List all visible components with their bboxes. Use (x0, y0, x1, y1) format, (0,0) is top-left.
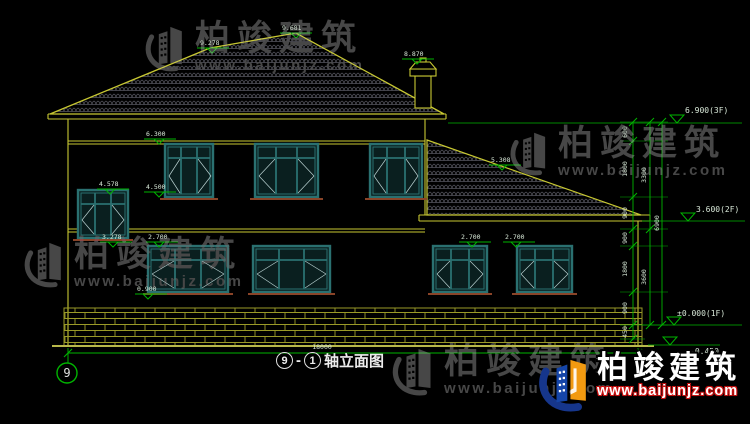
window-stair (78, 190, 128, 238)
svg-text:450: 450 (621, 326, 629, 338)
site-logo-url: www.baijunjz.com (597, 384, 741, 399)
window-1f-mid (253, 246, 330, 292)
svg-text:3300: 3300 (640, 167, 648, 183)
window-2f-right (370, 144, 422, 197)
svg-text:9.681: 9.681 (282, 24, 302, 32)
svg-text:900: 900 (621, 207, 629, 219)
svg-text:600: 600 (621, 126, 629, 138)
svg-text:2.700: 2.700 (461, 233, 481, 241)
brick-base (52, 308, 654, 346)
svg-text:6900: 6900 (653, 215, 661, 231)
site-logo-brand: 柏竣建筑 (597, 352, 741, 383)
title-separator: - (296, 352, 301, 369)
drawing-title: 9 - 1 轴立面图 (276, 350, 384, 371)
svg-text:1800: 1800 (621, 161, 629, 177)
annex-roof (419, 140, 650, 221)
svg-text:5.308: 5.308 (491, 156, 511, 164)
svg-text:9.278: 9.278 (200, 39, 220, 47)
svg-text:±0.000(1F): ±0.000(1F) (677, 309, 725, 318)
title-axis-end-bubble: 1 (304, 352, 321, 369)
main-eave-band (48, 114, 446, 119)
dimension-chain-right: 600 1800 900 900 1800 900 450 3300 3600 … (620, 118, 668, 343)
cad-elevation-screenshot: 9.278 9.681 8.870 6.300 5.308 4.578 4.50… (0, 0, 750, 424)
svg-text:900: 900 (621, 302, 629, 314)
mark-floor3: 6.900(3F) (670, 106, 728, 123)
svg-text:1800: 1800 (621, 261, 629, 277)
window-2f-mid (255, 144, 318, 197)
window-2f-left (165, 144, 213, 197)
window-annex-right (517, 246, 572, 292)
mark-floor1: ±0.000(1F) (667, 309, 725, 325)
svg-text:9: 9 (63, 366, 70, 380)
window-1f-left (148, 246, 228, 292)
svg-text:6.300: 6.300 (146, 130, 166, 138)
svg-text:2.700: 2.700 (505, 233, 525, 241)
svg-text:900: 900 (621, 232, 629, 244)
main-roof (48, 33, 446, 119)
svg-text:4.578: 4.578 (99, 180, 119, 188)
svg-text:2.700: 2.700 (148, 233, 168, 241)
annex-eave-band (419, 215, 650, 221)
title-axis-start-bubble: 9 (276, 352, 293, 369)
site-logo: 柏竣建筑 www.baijunjz.com (538, 352, 741, 414)
svg-text:0.900: 0.900 (137, 285, 157, 293)
svg-text:3600: 3600 (640, 269, 648, 285)
svg-text:3.600(2F): 3.600(2F) (696, 205, 739, 214)
site-logo-icon (538, 352, 592, 414)
title-text: 轴立面图 (324, 350, 384, 371)
svg-text:4.500: 4.500 (146, 183, 166, 191)
svg-text:3.278: 3.278 (102, 233, 122, 241)
mark-win2-head: 6.300 (144, 130, 176, 144)
mark-floor2: 3.600(2F) (681, 205, 739, 221)
axis-bubble-left: 9 (57, 353, 77, 383)
svg-text:6.900(3F): 6.900(3F) (685, 106, 728, 115)
window-annex-left (433, 246, 487, 292)
svg-text:8.870: 8.870 (404, 50, 424, 58)
